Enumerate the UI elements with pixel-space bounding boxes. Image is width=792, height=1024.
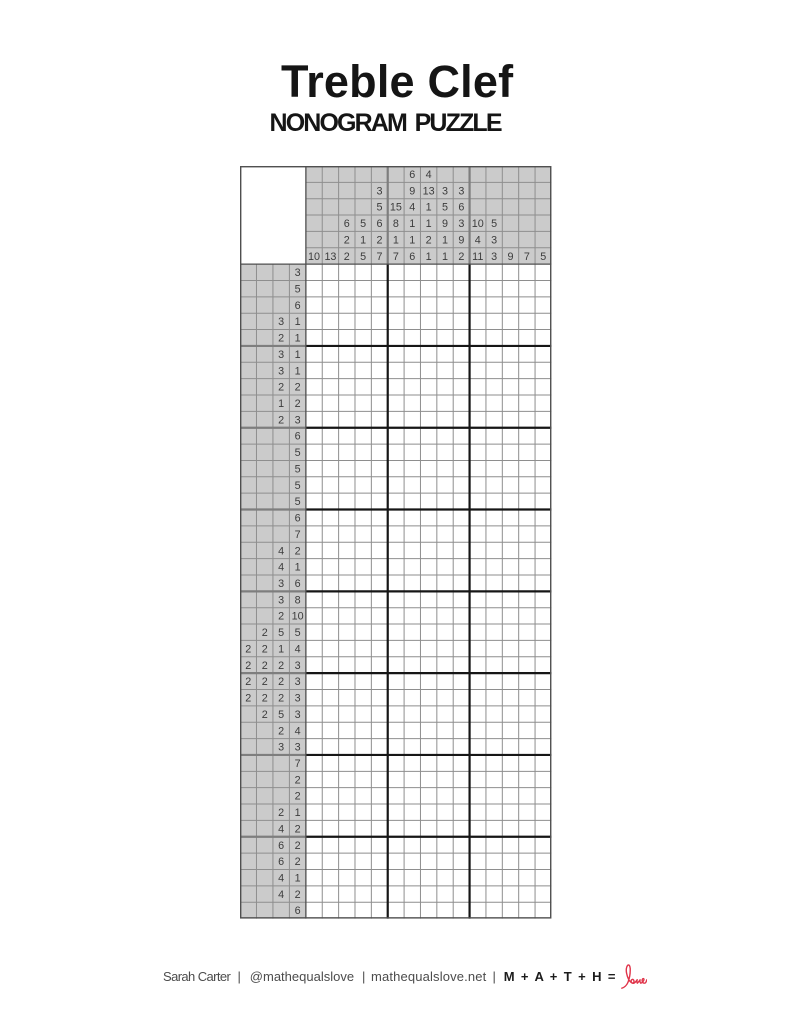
svg-text:2: 2 [278,807,284,819]
svg-text:9: 9 [459,235,465,247]
svg-text:2: 2 [262,709,268,721]
svg-text:4: 4 [475,235,481,247]
svg-text:3: 3 [295,709,301,721]
svg-text:5: 5 [491,218,497,230]
svg-text:9: 9 [409,186,415,198]
svg-text:10: 10 [472,218,484,230]
svg-text:2: 2 [295,824,301,836]
svg-text:5: 5 [540,251,546,263]
svg-text:6: 6 [377,218,383,230]
svg-text:2: 2 [295,398,301,410]
svg-text:2: 2 [459,251,465,263]
svg-text:2: 2 [295,775,301,787]
svg-text:1: 1 [295,349,301,361]
svg-text:3: 3 [442,186,448,198]
svg-text:5: 5 [295,480,301,492]
svg-text:1: 1 [278,644,284,656]
svg-text:2: 2 [278,382,284,394]
svg-text:2: 2 [262,644,268,656]
svg-text:6: 6 [409,251,415,263]
svg-text:6: 6 [278,856,284,868]
svg-text:5: 5 [278,627,284,639]
svg-text:7: 7 [393,251,399,263]
svg-text:13: 13 [325,251,337,263]
svg-text:3: 3 [295,660,301,672]
svg-text:1: 1 [295,807,301,819]
svg-text:11: 11 [472,251,483,263]
svg-text:2: 2 [278,415,284,427]
svg-text:10: 10 [308,251,320,263]
svg-text:2: 2 [262,660,268,672]
svg-text:2: 2 [278,611,284,623]
svg-text:5: 5 [360,218,366,230]
svg-text:4: 4 [295,725,301,737]
svg-text:3: 3 [491,251,497,263]
svg-text:3: 3 [278,365,284,377]
svg-text:5: 5 [377,202,383,214]
svg-text:3: 3 [278,349,284,361]
svg-text:3: 3 [377,186,383,198]
svg-text:2: 2 [262,693,268,705]
svg-text:3: 3 [295,742,301,754]
svg-text:3: 3 [491,235,497,247]
svg-text:6: 6 [409,169,415,181]
svg-text:8: 8 [295,595,301,607]
svg-text:2: 2 [278,660,284,672]
svg-text:1: 1 [409,218,415,230]
svg-text:1: 1 [295,316,301,328]
svg-text:3: 3 [278,595,284,607]
svg-text:6: 6 [278,840,284,852]
svg-text:6: 6 [459,202,465,214]
svg-text:1: 1 [426,202,432,214]
svg-text:2: 2 [426,235,432,247]
svg-text:5: 5 [295,496,301,508]
svg-text:2: 2 [245,676,251,688]
svg-text:4: 4 [426,169,432,181]
svg-text:1: 1 [295,873,301,885]
svg-text:2: 2 [295,889,301,901]
svg-text:4: 4 [278,889,284,901]
svg-text:6: 6 [295,431,301,443]
svg-text:3: 3 [278,742,284,754]
svg-text:1: 1 [295,333,301,345]
svg-text:5: 5 [295,447,301,459]
svg-text:3: 3 [459,186,465,198]
svg-text:3: 3 [278,316,284,328]
svg-text:2: 2 [262,676,268,688]
svg-text:4: 4 [278,824,284,836]
svg-text:7: 7 [524,251,530,263]
svg-text:2: 2 [295,382,301,394]
svg-text:2: 2 [278,333,284,345]
svg-text:2: 2 [278,676,284,688]
svg-text:3: 3 [278,578,284,590]
svg-text:10: 10 [292,611,304,623]
svg-text:2: 2 [344,235,350,247]
svg-text:2: 2 [295,856,301,868]
svg-text:1: 1 [426,251,432,263]
svg-text:2: 2 [245,660,251,672]
svg-text:7: 7 [377,251,383,263]
svg-text:5: 5 [360,251,366,263]
svg-text:15: 15 [390,202,402,214]
svg-text:2: 2 [295,545,301,557]
svg-text:1: 1 [426,218,432,230]
svg-text:7: 7 [295,758,301,770]
svg-text:2: 2 [295,840,301,852]
svg-text:6: 6 [295,578,301,590]
svg-text:6: 6 [295,905,301,917]
svg-text:5: 5 [442,202,448,214]
svg-text:3: 3 [295,693,301,705]
svg-text:2: 2 [245,693,251,705]
svg-text:4: 4 [278,873,284,885]
svg-text:1: 1 [295,562,301,574]
svg-text:5: 5 [278,709,284,721]
svg-text:4: 4 [278,562,284,574]
svg-text:4: 4 [295,644,301,656]
svg-text:3: 3 [295,676,301,688]
svg-text:1: 1 [442,235,448,247]
svg-text:7: 7 [295,529,301,541]
svg-text:1: 1 [278,398,284,410]
svg-text:5: 5 [295,284,301,296]
svg-text:5: 5 [295,627,301,639]
svg-text:5: 5 [295,464,301,476]
svg-text:6: 6 [344,218,350,230]
svg-text:2: 2 [377,235,383,247]
svg-text:1: 1 [360,235,366,247]
svg-text:3: 3 [459,218,465,230]
svg-text:4: 4 [409,202,415,214]
svg-text:2: 2 [295,791,301,803]
svg-text:6: 6 [295,300,301,312]
svg-text:4: 4 [278,545,284,557]
svg-text:2: 2 [278,693,284,705]
svg-text:9: 9 [508,251,514,263]
svg-text:9: 9 [442,218,448,230]
svg-text:13: 13 [423,186,435,198]
svg-text:1: 1 [409,235,415,247]
svg-text:6: 6 [295,513,301,525]
svg-text:3: 3 [295,267,301,279]
svg-text:3: 3 [295,415,301,427]
svg-text:1: 1 [295,365,301,377]
svg-text:1: 1 [393,235,399,247]
svg-text:8: 8 [393,218,399,230]
svg-text:2: 2 [278,725,284,737]
svg-text:1: 1 [442,251,448,263]
svg-text:2: 2 [262,627,268,639]
svg-text:2: 2 [245,644,251,656]
svg-text:2: 2 [344,251,350,263]
